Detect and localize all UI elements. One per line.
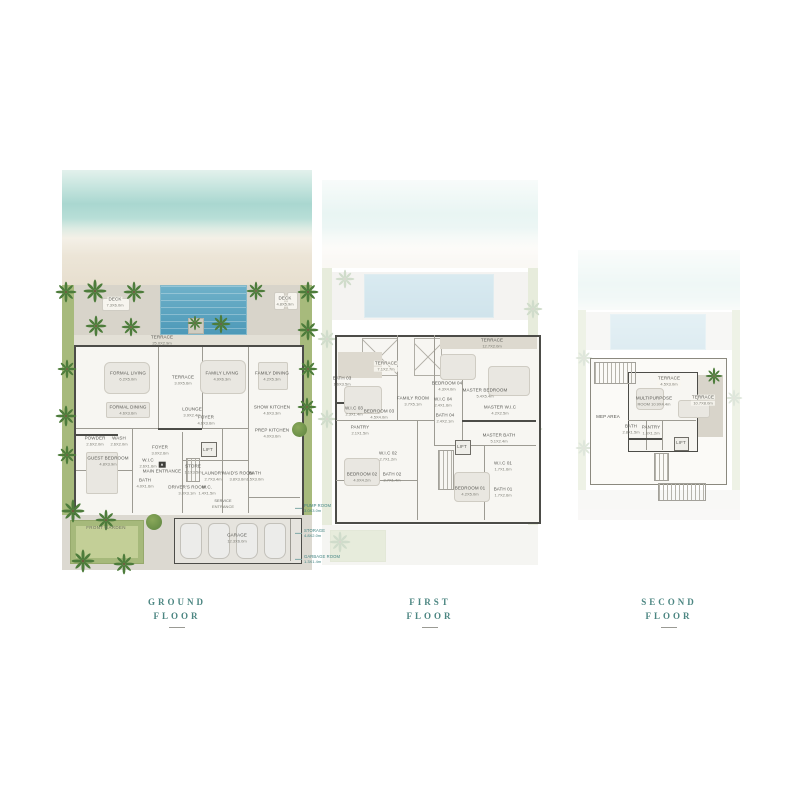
second-floor-plan: TERRACE4.5X3.0mTERRACE10.7X8.0mMULTIPURP… (578, 250, 740, 520)
title-line: GROUND (148, 597, 206, 607)
terrace-right-label: TERRACE12.7X2.0m (481, 338, 503, 349)
title-line: FIRST (409, 597, 451, 607)
garage-label: GARAGE12.3X6.0m (227, 533, 247, 544)
pantry-label: PANTRY1.6X1.2m (642, 425, 660, 436)
title-underline (422, 627, 438, 628)
second-floor-title: SECOND FLOOR (624, 596, 714, 628)
title-line: FLOOR (406, 611, 453, 621)
first-floor-plan: TERRACE7.1X2.7mTERRACE12.7X2.0mBEDROOM 0… (322, 180, 538, 565)
bedroom03-label: BEDROOM 034.5X4.0m (364, 409, 395, 420)
service-entrance-label: SERVICEENTRANCE (212, 499, 234, 509)
master-bath-label: MASTER BATH5.1X2.4m (483, 433, 516, 444)
title-underline (169, 627, 185, 628)
family-room-label: FAMILY ROOM3.7X5.1m (397, 396, 429, 407)
bath01-label: BATH 011.7X2.6m (494, 487, 513, 498)
lift-label: LIFT (203, 447, 213, 453)
bedroom04-label: BEDROOM 044.3X4.0m (432, 381, 463, 392)
deck-left-label: DECK7.3X6.0m (105, 297, 124, 308)
wic04-label: W.I.C 042.4X1.6m (434, 397, 452, 408)
wic02-label: W.I.C 022.7X1.2m (379, 451, 397, 462)
ground-floor-title: GROUND FLOOR (132, 596, 222, 628)
wash-label: WASH2.6X2.0m (110, 436, 127, 447)
title-underline (661, 627, 677, 628)
terrace-mid-label: TERRACE3.0X5.6m (172, 375, 194, 386)
ground-floor-room-labels: DECK7.3X6.0mDECK4.8X5.9mTERRACE25.0X2.9m… (62, 170, 312, 570)
family-living-label: FAMILY LIVING4.9X6.3m (206, 371, 239, 382)
guest-bedroom-label: GUEST BEDROOM4.8X3.9m (87, 456, 128, 467)
title-line: FLOOR (153, 611, 200, 621)
store-label: STORE1.1X3.5m (184, 464, 201, 475)
formal-living-label: FORMAL LIVING6.2X5.0m (110, 371, 146, 382)
main-entrance-label: ▲MAIN ENTRANCE (143, 462, 182, 475)
laundry-label: LAUNDRY2.7X3.4m (202, 471, 224, 482)
wc-label: W.C.1.4X1.5m (198, 485, 215, 496)
first-floor-title: FIRST FLOOR (385, 596, 475, 628)
bath02-label: BATH 022.7X1.4m (383, 472, 402, 483)
first-floor-room-labels: TERRACE7.1X2.7mTERRACE12.7X2.0mBEDROOM 0… (322, 180, 538, 565)
terrace-strip-label: TERRACE25.0X2.9m (151, 335, 173, 346)
bath03-label: BATH 031.6X3.5m (333, 376, 352, 387)
entry-foyer-label: FOYER3.0X2.6m (151, 445, 168, 456)
terrace-left-label: TERRACE7.1X2.7m (374, 361, 398, 372)
ground-floor-plan: DECK7.3X6.0mDECK4.8X5.9mTERRACE25.0X2.9m… (62, 170, 312, 570)
lift-label: LIFT (676, 440, 686, 446)
title-line: FLOOR (645, 611, 692, 621)
terrace-small-label: TERRACE4.5X3.0m (657, 376, 681, 387)
show-kitchen-label: SHOW KITCHEN4.6X3.3m (254, 405, 290, 416)
multipurpose-room-label: MULTIPURPOSEROOM 10.9X4.4m (636, 396, 672, 407)
front-garden-label: FRONT GARDEN (86, 525, 126, 531)
bedroom01-label: BEDROOM 014.2X5.0m (455, 486, 486, 497)
wic01-label: W.I.C 011.7X1.6m (494, 461, 512, 472)
terrace-large-label: TERRACE10.7X8.0m (691, 395, 715, 406)
wic03-label: W.I.C 032.3X1.4m (345, 406, 363, 417)
deck-right-label: DECK4.8X5.9m (275, 296, 294, 307)
bath-label: BATH4.0X1.6m (136, 478, 153, 489)
formal-dining-label: FORMAL DINING4.6X3.6m (110, 405, 147, 416)
master-wic-label: MASTER W.I.C4.2X2.5m (484, 405, 516, 416)
foyer-label: FOYER4.6X3.6m (197, 415, 214, 426)
title-line: SECOND (641, 597, 697, 607)
pantry-label: PANTRY2.1X1.5m (351, 425, 369, 436)
master-bedroom-label: MASTER BEDROOM5.4X5.4m (463, 388, 508, 399)
family-dining-label: FAMILY DINING4.2X5.3m (255, 371, 289, 382)
lift-label: LIFT (457, 444, 467, 450)
second-floor-room-labels: TERRACE4.5X3.0mTERRACE10.7X8.0mMULTIPURP… (578, 250, 740, 520)
powder-label: POWDER2.6X2.0m (85, 436, 106, 447)
mep-area-label: MEP AREA (596, 414, 620, 420)
prep-kitchen-label: PREP KITCHEN4.0X3.6m (255, 428, 289, 439)
maids-bath-label: BATH1.5X3.0m (246, 471, 263, 482)
bath-label: BATH2.8X1.5m (622, 424, 639, 435)
bedroom02-label: BEDROOM 024.0X4.2m (347, 472, 378, 483)
floor-plan-sheet: { "palette": { "title_teal": "#4c8682", … (0, 0, 800, 800)
bath04-label: BATH 042.4X2.1m (436, 413, 455, 424)
